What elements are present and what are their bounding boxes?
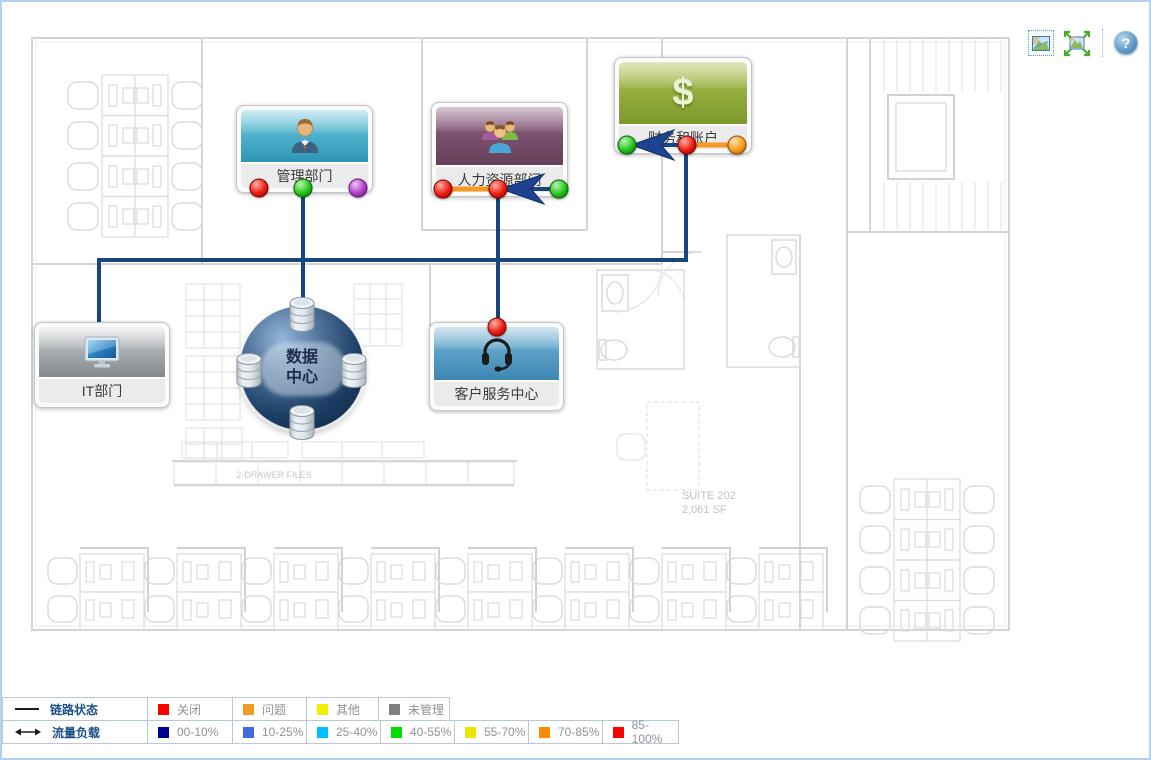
legend-item-label: 55-70%: [484, 725, 525, 739]
legend-item: 问题: [232, 697, 307, 721]
legend-item: 55-70%: [454, 720, 529, 744]
legend-item-label: 10-25%: [262, 725, 303, 739]
legend-item-label: 问题: [262, 701, 286, 718]
legend-item-label: 未管理: [408, 701, 444, 718]
status-dot-red[interactable]: [489, 180, 508, 199]
legend-color-swatch: [539, 727, 550, 738]
fit-to-screen-map-icon[interactable]: [1063, 30, 1091, 57]
link-line-icon: [15, 708, 39, 710]
status-dot-red[interactable]: [434, 180, 453, 199]
legend-item-label: 85-100%: [632, 718, 678, 746]
double-arrow-icon: [15, 727, 41, 737]
legend-item-label: 40-55%: [410, 725, 451, 739]
legend-title-link-status: 链路状态: [50, 701, 98, 718]
status-dot-red[interactable]: [678, 136, 697, 155]
legend-item-label: 25-40%: [336, 725, 377, 739]
legend-color-swatch: [158, 704, 169, 715]
status-dot-red[interactable]: [250, 179, 269, 198]
help-label: ?: [1122, 35, 1131, 51]
legend-row-link-status: 链路状态 关闭 问题 其他 未管理: [2, 697, 679, 721]
status-dot-purple[interactable]: [349, 179, 368, 198]
legend-color-swatch: [613, 727, 624, 738]
legend-item: 00-10%: [147, 720, 233, 744]
legend-item-label: 关闭: [177, 701, 201, 718]
status-dot-green[interactable]: [294, 179, 313, 198]
legend-item: 40-55%: [380, 720, 455, 744]
legend: 链路状态 关闭 问题 其他 未管理: [2, 697, 679, 744]
legend-item: 关闭: [147, 697, 233, 721]
toolbar-separator: [1102, 29, 1103, 57]
legend-item: 85-100%: [602, 720, 679, 744]
business-view-canvas: SUITE 202 2,061 SF 2-DRAWER FILES 管理部门: [0, 0, 1151, 760]
legend-item: 10-25%: [232, 720, 307, 744]
map-toolbar: ?: [1028, 29, 1138, 57]
link-status-layer: [2, 2, 1151, 695]
legend-color-swatch: [465, 727, 476, 738]
legend-item: 未管理: [378, 697, 450, 721]
legend-color-swatch: [243, 704, 254, 715]
legend-color-swatch: [243, 727, 254, 738]
help-icon[interactable]: ?: [1114, 31, 1138, 55]
legend-head-link-status: 链路状态: [2, 697, 148, 721]
legend-item-label: 70-85%: [558, 725, 599, 739]
legend-color-swatch: [317, 727, 328, 738]
legend-color-swatch: [158, 727, 169, 738]
legend-item-label: 00-10%: [177, 725, 218, 739]
status-dot-orange[interactable]: [728, 136, 747, 155]
legend-item: 25-40%: [306, 720, 381, 744]
legend-row-traffic-load: 流量负载 00-10% 10-25% 25-40% 40-55% 55-70%: [2, 720, 679, 744]
zoom-select-map-icon[interactable]: [1028, 30, 1054, 56]
legend-head-traffic-load: 流量负载: [2, 720, 148, 744]
status-dot-green[interactable]: [618, 136, 637, 155]
legend-color-swatch: [317, 704, 328, 715]
legend-color-swatch: [389, 704, 400, 715]
legend-title-traffic-load: 流量负载: [52, 724, 100, 741]
status-dot-red[interactable]: [488, 318, 507, 337]
legend-item-label: 其他: [336, 701, 360, 718]
legend-color-swatch: [391, 727, 402, 738]
legend-item: 其他: [306, 697, 379, 721]
legend-item: 70-85%: [528, 720, 603, 744]
status-dot-green[interactable]: [550, 180, 569, 199]
